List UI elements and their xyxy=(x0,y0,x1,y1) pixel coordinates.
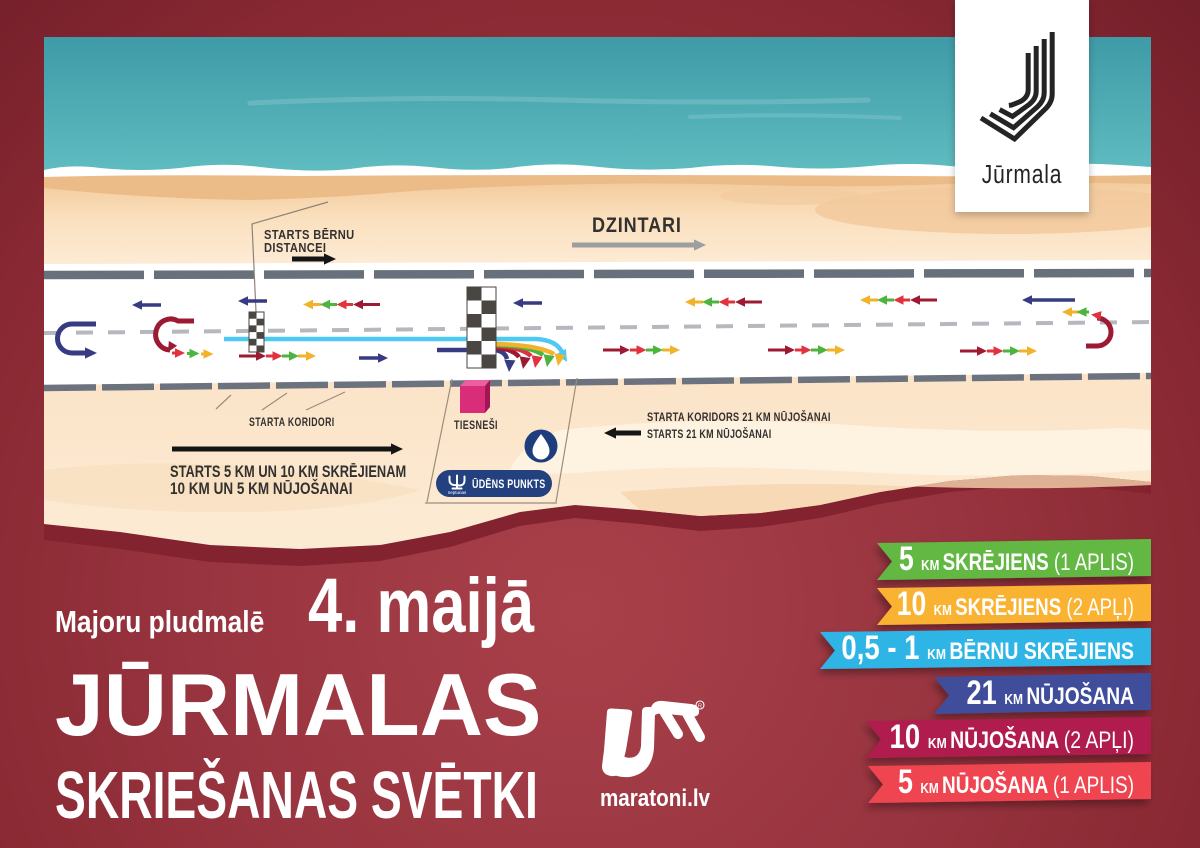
svg-text:Majoru pludmalē: Majoru pludmalē xyxy=(55,605,264,639)
svg-text:10 KM UN 5 KM NŪJOŠANAI: 10 KM UN 5 KM NŪJOŠANAI xyxy=(170,479,353,499)
svg-text:TIESNEŠI: TIESNEŠI xyxy=(454,418,498,432)
svg-text:ŪDĒNS PUNKTS: ŪDĒNS PUNKTS xyxy=(472,478,545,491)
svg-text:STARTA KORIDORI: STARTA KORIDORI xyxy=(249,417,335,429)
svg-text:Jūrmala: Jūrmala xyxy=(982,161,1063,190)
svg-text:maratoni.lv: maratoni.lv xyxy=(600,785,711,812)
svg-text:neptunas: neptunas xyxy=(448,490,467,495)
svg-text:SKRIEŠANAS SVĒTKI: SKRIEŠANAS SVĒTKI xyxy=(55,757,538,833)
svg-text:STARTS 21 KM NŪJOŠANAI: STARTS 21 KM NŪJOŠANAI xyxy=(647,427,771,441)
svg-text:STARTA KORIDORS 21 KM NŪJOŠANA: STARTA KORIDORS 21 KM NŪJOŠANAI xyxy=(647,410,831,424)
svg-text:R: R xyxy=(698,704,702,710)
svg-text:STARTS 5 KM UN 10 KM SKRĒJIENA: STARTS 5 KM UN 10 KM SKRĒJIENAM xyxy=(170,463,406,482)
svg-text:4. maijā: 4. maijā xyxy=(308,562,535,648)
svg-text:DISTANCEI: DISTANCEI xyxy=(264,240,326,255)
svg-text:DZINTARI: DZINTARI xyxy=(592,214,682,238)
svg-text:JŪRMALAS: JŪRMALAS xyxy=(55,656,541,754)
